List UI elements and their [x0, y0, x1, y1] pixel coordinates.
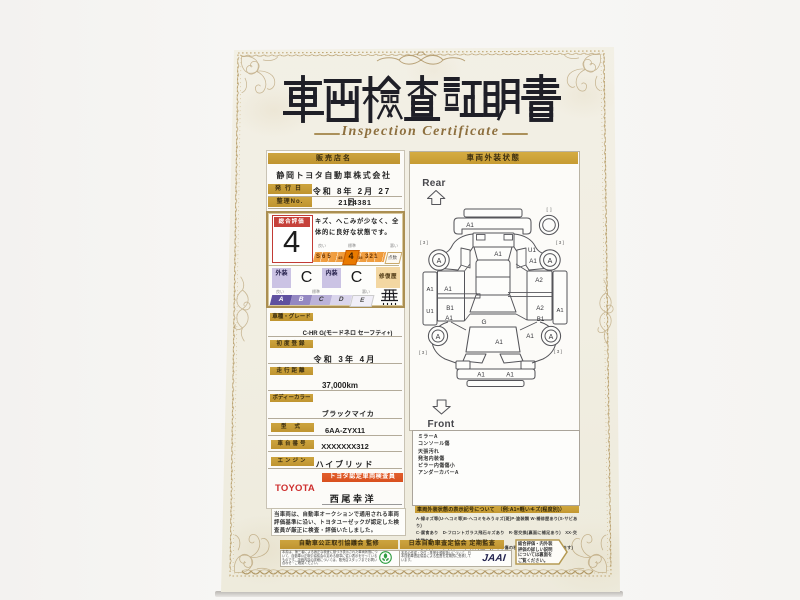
- svg-text:[ 3 ]: [ 3 ]: [420, 240, 428, 245]
- svg-text:A1: A1: [494, 251, 502, 258]
- svg-text:A: A: [437, 258, 442, 265]
- svg-text:A1: A1: [556, 308, 563, 314]
- svg-text:A: A: [548, 258, 553, 265]
- svg-text:A2: A2: [536, 305, 544, 312]
- svg-text:A1: A1: [506, 372, 514, 379]
- svg-text:A: A: [436, 334, 441, 341]
- svg-text:U1: U1: [528, 247, 536, 254]
- svg-text:A1: A1: [426, 287, 433, 293]
- svg-text:A1: A1: [477, 372, 485, 379]
- svg-text:Front: Front: [427, 419, 454, 429]
- svg-text:[ 3 ]: [ 3 ]: [419, 350, 427, 355]
- svg-text:A1: A1: [444, 286, 452, 293]
- svg-text:A: A: [549, 334, 554, 341]
- svg-text:A1: A1: [526, 333, 534, 340]
- svg-text:A1: A1: [466, 222, 474, 229]
- svg-text:[ 3 ]: [ 3 ]: [554, 349, 562, 354]
- svg-text:Rear: Rear: [422, 178, 445, 189]
- svg-text:B1: B1: [446, 305, 454, 312]
- svg-text:[ 3 ]: [ 3 ]: [556, 240, 564, 245]
- svg-text:U1: U1: [426, 309, 433, 315]
- svg-text:G: G: [481, 319, 486, 326]
- svg-text:A1: A1: [495, 339, 503, 346]
- svg-text:[ ]: [ ]: [546, 207, 551, 212]
- svg-text:A1: A1: [529, 258, 537, 265]
- svg-text:A2: A2: [535, 277, 543, 284]
- svg-text:A1: A1: [445, 315, 453, 322]
